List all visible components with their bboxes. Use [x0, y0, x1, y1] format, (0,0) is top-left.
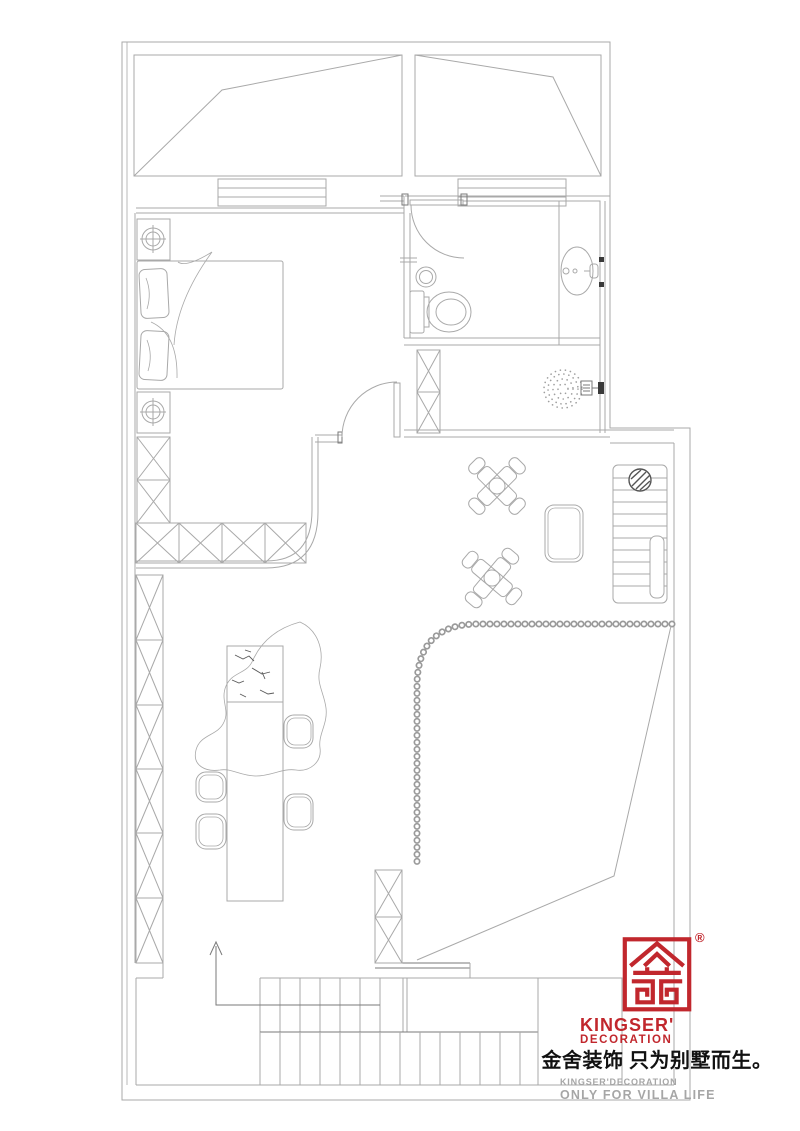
interior-walls	[136, 196, 674, 1085]
window-left	[218, 179, 326, 206]
structural-column	[629, 469, 651, 491]
balcony-door-swing	[380, 194, 467, 258]
watermark-brand-line: KINGSER'DECORATION	[560, 1077, 760, 1087]
shower-spray	[544, 370, 582, 408]
vanity-sink	[559, 201, 604, 345]
bar-stools	[196, 715, 313, 849]
roof-slope-projection-lines	[417, 626, 671, 960]
ottoman	[545, 505, 583, 562]
bead-screen-curve	[417, 624, 672, 868]
double-bed	[137, 252, 283, 389]
stone-bar-island	[195, 622, 326, 901]
nightstand-top	[137, 219, 170, 260]
kingser-logo-icon	[622, 936, 692, 1014]
nightstand-bottom	[137, 392, 170, 433]
floor-drain	[416, 267, 436, 287]
tea-table-with-chairs-2	[444, 530, 540, 626]
cabinet-lattice-horizontal	[136, 523, 306, 563]
stair-direction-arrow	[210, 942, 380, 1005]
wardrobe-lattice-left-upper	[137, 437, 170, 523]
tea-table-with-chairs-1	[449, 438, 545, 534]
pillow-bottom	[139, 330, 170, 380]
cabinet-lattice-bath-column	[417, 350, 440, 433]
outer-walls	[122, 42, 690, 1100]
registered-trademark-icon: ®	[695, 930, 705, 945]
roof-slope-panel-left	[134, 55, 402, 176]
toilet	[410, 291, 471, 333]
cabinet-lattice-left-lower	[136, 575, 163, 963]
watermark-tagline: ONLY FOR VILLA LIFE	[560, 1088, 760, 1102]
window-right	[458, 179, 566, 206]
bedroom-door-swing	[342, 382, 400, 437]
pillow-top	[139, 268, 170, 318]
cabinet-lattice-bottom-column	[375, 870, 402, 963]
shower-head	[581, 381, 604, 395]
brand-slogan-chinese: 金舍装饰 只为别墅而生。	[532, 1044, 782, 1073]
roof-slope-panel-right	[415, 55, 601, 176]
floor-plan-canvas: ® KINGSER' DECORATION 金舍装饰 只为别墅而生。 KINGS…	[0, 0, 800, 1131]
logo-brand-name: KINGSER'	[580, 1015, 740, 1036]
